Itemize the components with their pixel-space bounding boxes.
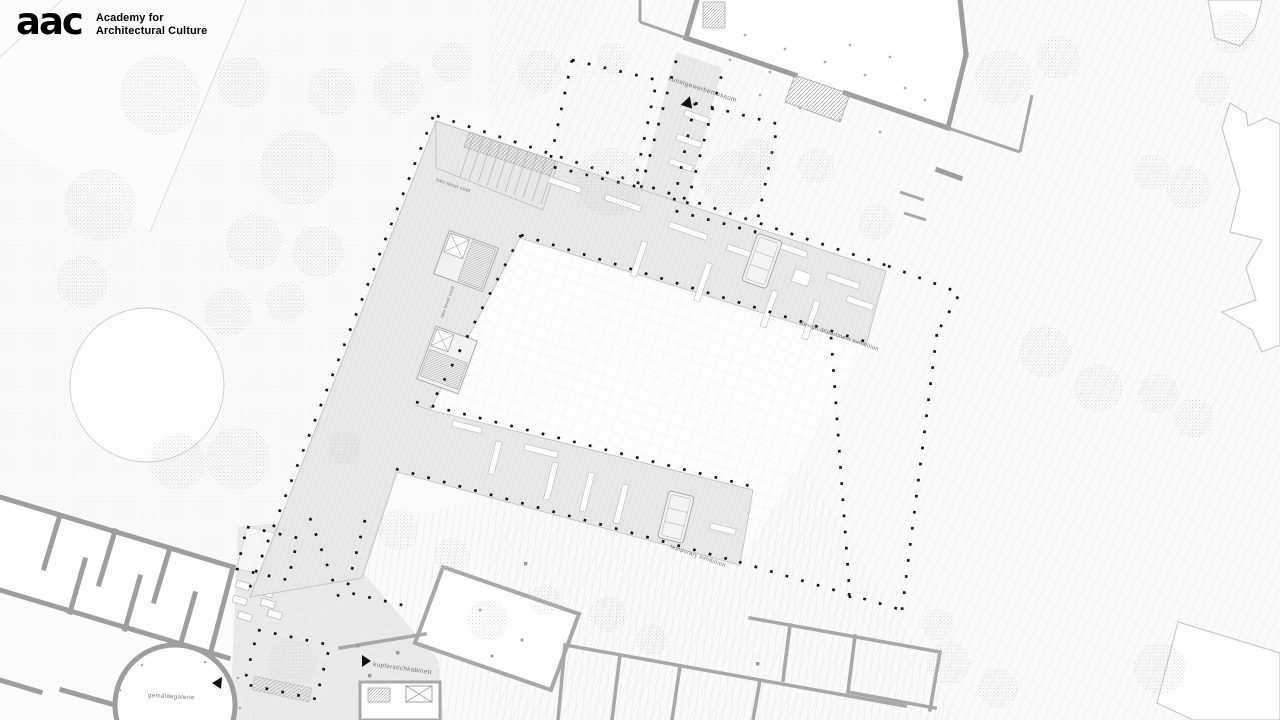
aac-logo-name-line2: Architectural Culture — [96, 25, 208, 38]
site-plan-page: aac Academy for Architectural Culture — [0, 0, 1280, 720]
aac-logo-name-line1: Academy for — [96, 12, 208, 25]
circular-lawn — [70, 308, 224, 462]
aac-logo-mark: aac — [16, 2, 82, 42]
site-plan-drawing: kunstgewerbemuseum two-level void two le… — [0, 0, 1280, 720]
aac-logo: aac Academy for Architectural Culture — [16, 2, 207, 42]
kupferstich-core — [360, 682, 440, 720]
aac-logo-name: Academy for Architectural Culture — [96, 12, 208, 38]
